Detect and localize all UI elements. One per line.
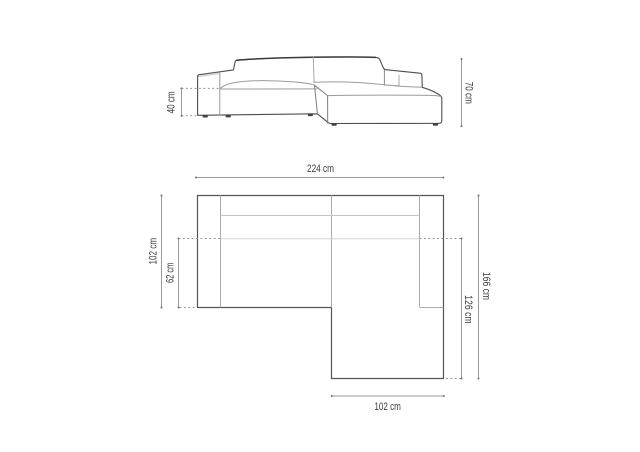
svg-text:166 cm: 166 cm [480,272,492,300]
svg-text:102 cm: 102 cm [374,401,401,413]
svg-text:62 cm: 62 cm [165,263,177,284]
svg-text:126 cm: 126 cm [462,295,474,324]
svg-text:224 cm: 224 cm [307,163,334,175]
svg-text:102 cm: 102 cm [148,238,160,265]
svg-text:40 cm: 40 cm [165,91,177,113]
svg-text:70 cm: 70 cm [463,82,475,104]
